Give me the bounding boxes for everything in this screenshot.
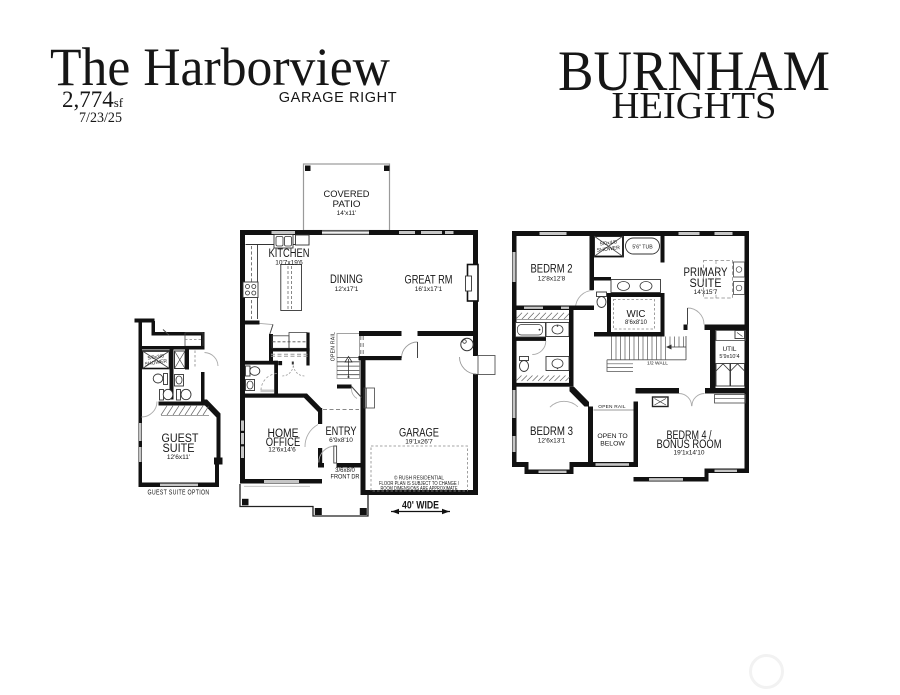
svg-text:1/2 WALL: 1/2 WALL — [647, 361, 668, 367]
svg-text:14'x15'7: 14'x15'7 — [694, 289, 718, 296]
svg-text:HEIGHTS: HEIGHTS — [612, 85, 777, 127]
svg-text:ROOM DIMENSIONS ARE APPROXIMAT: ROOM DIMENSIONS ARE APPROXIMATE — [381, 486, 459, 492]
svg-text:40' WIDE: 40' WIDE — [402, 500, 439, 512]
svg-text:BELOW: BELOW — [600, 441, 625, 448]
svg-text:19'1x14'10: 19'1x14'10 — [673, 450, 704, 457]
svg-text:OPEN RAIL: OPEN RAIL — [598, 404, 626, 410]
svg-text:OPEN TO: OPEN TO — [597, 433, 627, 440]
svg-text:5'6" TUB: 5'6" TUB — [632, 245, 653, 251]
svg-text:12'6x14'6: 12'6x14'6 — [268, 447, 296, 454]
svg-text:14'x11': 14'x11' — [337, 210, 357, 217]
svg-text:8'6x8'10: 8'6x8'10 — [625, 320, 648, 326]
svg-text:10'7x19'6: 10'7x19'6 — [275, 260, 303, 267]
svg-text:FRONT DR: FRONT DR — [331, 475, 361, 481]
svg-text:GUEST SUITE OPTION: GUEST SUITE OPTION — [148, 488, 210, 497]
svg-text:KITCHEN: KITCHEN — [269, 248, 310, 260]
svg-text:7/23/25: 7/23/25 — [79, 110, 122, 126]
svg-text:UTIL: UTIL — [723, 346, 738, 353]
svg-text:PATIO: PATIO — [333, 199, 361, 210]
svg-text:BEDRM 3: BEDRM 3 — [530, 426, 573, 438]
svg-text:19'1x26'7: 19'1x26'7 — [405, 439, 433, 446]
svg-text:OPEN RAIL: OPEN RAIL — [331, 332, 337, 361]
svg-text:3/6x8/0: 3/6x8/0 — [335, 468, 355, 474]
svg-text:12'x17'1: 12'x17'1 — [335, 286, 359, 293]
svg-text:5'9x10'4: 5'9x10'4 — [719, 354, 739, 360]
svg-text:12'6x13'1: 12'6x13'1 — [538, 438, 566, 445]
svg-text:GARAGE RIGHT: GARAGE RIGHT — [279, 90, 397, 106]
svg-text:BEDRM 2: BEDRM 2 — [531, 264, 573, 276]
svg-text:16'1x17'1: 16'1x17'1 — [415, 286, 443, 293]
svg-text:6'9x8'10: 6'9x8'10 — [329, 437, 353, 444]
svg-text:12'8x12'8: 12'8x12'8 — [538, 276, 566, 283]
svg-text:DINING: DINING — [330, 274, 363, 286]
svg-text:12'6x11': 12'6x11' — [167, 454, 190, 461]
svg-text:GREAT RM: GREAT RM — [405, 275, 453, 287]
svg-text:WIC: WIC — [627, 308, 646, 320]
